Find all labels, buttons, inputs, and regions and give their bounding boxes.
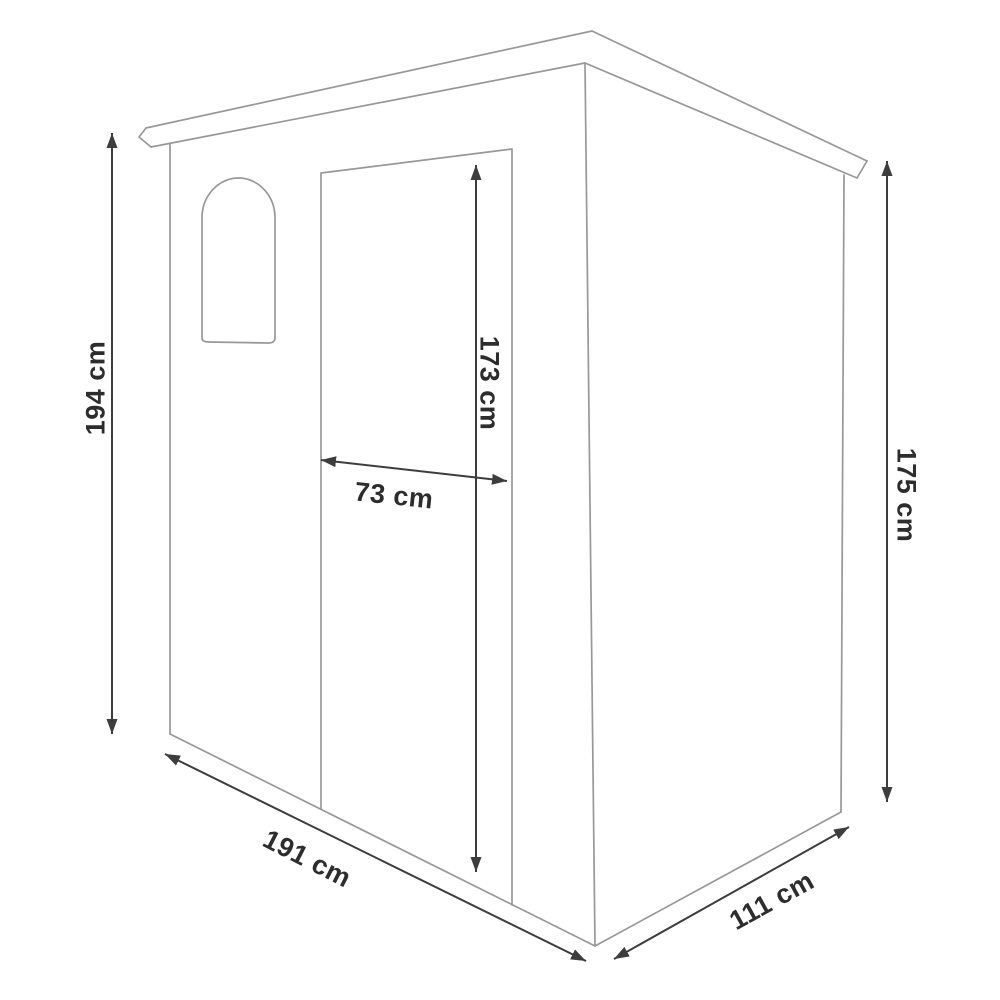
shed-roof-top-edge — [146, 31, 867, 161]
shed-front-right-corner-edge — [585, 63, 595, 946]
shed-roof-left-cap — [139, 128, 151, 147]
shed-roof-right-cap — [857, 161, 867, 178]
shed-window — [202, 178, 275, 343]
shed-rear-right-edge — [841, 175, 844, 812]
shed-roof-fascia-left — [151, 63, 585, 147]
shed-door — [321, 149, 512, 905]
width-arrow — [165, 754, 586, 961]
shed-outline — [139, 31, 867, 946]
front-height-label: 194 cm — [81, 341, 112, 436]
shed-dimension-diagram: 194 cm 173 cm 73 cm 175 cm 191 cm 111 cm — [0, 0, 1000, 1000]
dimension-arrows — [112, 133, 887, 961]
shed-roof-fascia-right — [585, 63, 857, 178]
door-height-label: 173 cm — [474, 336, 505, 431]
rear-height-label: 175 cm — [891, 448, 922, 543]
door-width-arrow — [321, 460, 507, 481]
shed-front-bottom-edge — [170, 734, 595, 946]
shed-wireframe-svg — [0, 0, 1000, 1000]
